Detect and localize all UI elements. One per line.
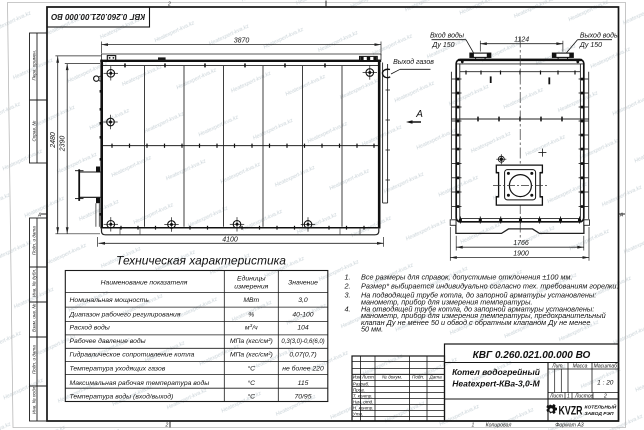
svg-text:2: 2 bbox=[603, 394, 607, 400]
svg-text:Лит.: Лит. bbox=[551, 363, 564, 369]
svg-text:Рабочее давление воды: Рабочее давление воды bbox=[70, 337, 146, 345]
svg-text:1124: 1124 bbox=[514, 37, 529, 44]
svg-text:Температура воды (вход/выход): Температура воды (вход/выход) bbox=[70, 392, 174, 400]
svg-text:0,07(0,7): 0,07(0,7) bbox=[289, 351, 316, 358]
svg-text:40-100: 40-100 bbox=[292, 312, 313, 319]
svg-text:Инв. № подл.: Инв. № подл. bbox=[31, 385, 36, 414]
svg-text:Пров.: Пров. bbox=[353, 387, 365, 392]
svg-text:Копировал: Копировал bbox=[486, 423, 512, 429]
svg-text:Взам. инв. №: Взам. инв. № bbox=[31, 304, 36, 332]
svg-text:Утв.: Утв. bbox=[353, 411, 363, 416]
svg-text:Температура уходящих газов: Температура уходящих газов bbox=[70, 365, 166, 373]
svg-text:2.: 2. bbox=[344, 281, 351, 290]
svg-text:Единицы: Единицы bbox=[237, 275, 265, 283]
svg-text:Размер* выбирается индивидуаль: Размер* выбирается индивидуально согласн… bbox=[361, 281, 618, 290]
svg-text:Выход газов: Выход газов bbox=[393, 58, 434, 66]
svg-text:Нач. отд.: Нач. отд. bbox=[353, 399, 374, 404]
svg-text:№ докум.: № докум. bbox=[382, 375, 402, 380]
svg-text:МПа (кгс/см²): МПа (кгс/см²) bbox=[230, 351, 273, 358]
svg-text:Вход воды: Вход воды bbox=[430, 32, 465, 40]
svg-text:1: 1 bbox=[472, 423, 475, 429]
svg-text:1766: 1766 bbox=[513, 240, 529, 247]
svg-text:не более 220: не более 220 bbox=[282, 365, 324, 373]
svg-text:КВГ 0.260.021.00.000 ВО: КВГ 0.260.021.00.000 ВО bbox=[473, 350, 591, 361]
svg-text:2: 2 bbox=[165, 423, 169, 429]
svg-text:клапан Ду не менее 50 и обвод: клапан Ду не менее 50 и обвод с обратным… bbox=[361, 318, 590, 327]
svg-text:Все размеры для справок, допус: Все размеры для справок, допустимые откл… bbox=[361, 273, 573, 282]
svg-text:Техническая характеристика: Техническая характеристика bbox=[116, 253, 286, 267]
svg-text:Ду 150: Ду 150 bbox=[431, 42, 454, 49]
svg-text:2390: 2390 bbox=[59, 136, 66, 153]
svg-text:Подп. и дата: Подп. и дата bbox=[31, 226, 36, 255]
svg-text:2480: 2480 bbox=[50, 132, 57, 149]
svg-text:Н. контр.: Н. контр. bbox=[353, 405, 374, 410]
svg-text:А: А bbox=[415, 109, 423, 120]
svg-text:2: 2 bbox=[167, 2, 171, 8]
svg-text:Heatexpert-КВа-3,0-М: Heatexpert-КВа-3,0-М bbox=[452, 379, 540, 389]
svg-text:Максимальная рабочая температу: Максимальная рабочая температура воды bbox=[70, 379, 210, 387]
svg-text:Лист: Лист bbox=[361, 375, 374, 380]
svg-text:Диапазон рабочего регулировани: Диапазон рабочего регулирования bbox=[69, 311, 181, 319]
svg-text:Инв. № дубл.: Инв. № дубл. bbox=[31, 269, 36, 297]
svg-text:А: А bbox=[619, 213, 624, 219]
svg-text:4.: 4. bbox=[345, 304, 351, 313]
svg-text:Т. контр.: Т. контр. bbox=[353, 393, 373, 398]
svg-text:50 мм.: 50 мм. bbox=[361, 325, 383, 334]
svg-text:Гидравлическое сопротивление к: Гидравлическое сопротивление котла bbox=[70, 350, 195, 358]
svg-text:°С: °С bbox=[247, 379, 255, 387]
svg-text:Котел водогрейный: Котел водогрейный bbox=[452, 367, 541, 377]
svg-text:Перв. примен.: Перв. примен. bbox=[31, 50, 36, 81]
svg-text:МПа (кгс/см²): МПа (кгс/см²) bbox=[230, 338, 273, 345]
svg-text:Изм: Изм bbox=[353, 375, 362, 380]
svg-text:3,0: 3,0 bbox=[298, 297, 308, 304]
svg-text:МВт: МВт bbox=[243, 297, 259, 304]
svg-text:Расход воды: Расход воды bbox=[70, 323, 110, 331]
svg-text:Ду 150: Ду 150 bbox=[579, 42, 602, 49]
svg-text:Выход воды: Выход воды bbox=[580, 32, 620, 40]
svg-text:3870: 3870 bbox=[234, 38, 250, 45]
svg-text:°С: °С bbox=[247, 392, 255, 400]
svg-text:3.: 3. bbox=[345, 291, 351, 300]
svg-text:1.: 1. bbox=[345, 273, 351, 282]
svg-text:Разраб.: Разраб. bbox=[353, 381, 370, 386]
svg-text:KVZR: KVZR bbox=[559, 404, 583, 418]
svg-text:104: 104 bbox=[297, 324, 309, 331]
svg-text:Лист: Лист bbox=[549, 394, 563, 400]
svg-text:1: 1 bbox=[567, 394, 570, 400]
svg-text:0,3(3,0)-0,6(6,0): 0,3(3,0)-0,6(6,0) bbox=[281, 339, 324, 345]
svg-text:70/95: 70/95 bbox=[294, 393, 311, 400]
svg-text:Номинальная мощность: Номинальная мощность bbox=[70, 297, 150, 304]
svg-text:%: % bbox=[248, 312, 254, 319]
svg-text:1900: 1900 bbox=[513, 251, 529, 258]
svg-text:Значение: Значение bbox=[288, 280, 318, 287]
svg-text:измерения: измерения bbox=[234, 284, 268, 291]
svg-text:°С: °С bbox=[247, 365, 255, 373]
svg-text:ЗАВОД РЭП: ЗАВОД РЭП bbox=[585, 411, 614, 417]
svg-text:Формат А3: Формат А3 bbox=[555, 423, 583, 429]
svg-text:Наименование показателя: Наименование показателя bbox=[101, 280, 188, 287]
svg-text:Подп.: Подп. bbox=[412, 375, 424, 380]
svg-text:Подп. и дата: Подп. и дата bbox=[31, 345, 36, 374]
svg-text:КВГ 0.260.021.00.000 ВО: КВГ 0.260.021.00.000 ВО bbox=[50, 12, 145, 21]
svg-text:Справ. №: Справ. № bbox=[31, 121, 36, 142]
svg-text:Дата: Дата bbox=[429, 375, 443, 380]
svg-text:115: 115 bbox=[298, 380, 309, 387]
svg-text:Листов: Листов bbox=[574, 394, 594, 400]
svg-text:Масса: Масса bbox=[573, 363, 588, 369]
svg-text:4100: 4100 bbox=[222, 236, 238, 243]
svg-text:1 : 20: 1 : 20 bbox=[597, 380, 614, 387]
svg-text:м3/ч: м3/ч bbox=[245, 323, 258, 331]
svg-text:Масштаб: Масштаб bbox=[594, 363, 618, 369]
